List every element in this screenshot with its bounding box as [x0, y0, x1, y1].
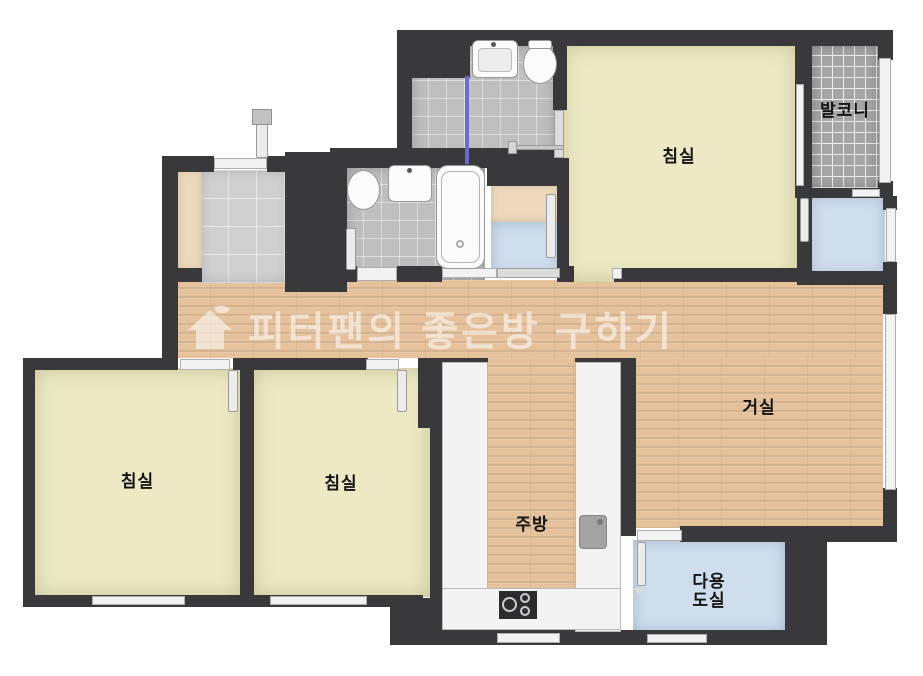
shower-door-bracket: [508, 141, 517, 154]
entrance-threshold: [214, 158, 267, 169]
watermark-text: 피터팬의 좋은방 구하기: [248, 299, 674, 357]
balcony-label: 발코니: [806, 102, 884, 121]
kitchen-floor: [487, 358, 577, 590]
living-room-east-window: [885, 314, 896, 490]
watermark: 피터팬의 좋은방 구하기: [186, 302, 674, 354]
wall-main-bath-bottom-mid: [397, 266, 442, 282]
entrance-floor: [200, 170, 288, 283]
stove-burner-small-bottom: [520, 606, 530, 616]
kitchen-sink-drain: [597, 519, 603, 525]
wall-dressing-bottom-stub: [560, 266, 574, 282]
living-room-label: 거실: [635, 399, 883, 418]
house-logo-icon: [186, 305, 234, 351]
living-room-floor: [635, 358, 883, 528]
wall-bedroom-middle-east: [430, 428, 442, 600]
wall-south: [420, 630, 827, 645]
dressing-door-leaf: [546, 194, 556, 258]
shower-door-bar: [512, 145, 564, 150]
wall-bedroom-top-bottom: [614, 268, 812, 282]
bedroom-middle-label: 침실: [252, 475, 430, 494]
main-bath-threshold: [357, 267, 397, 281]
upper-bath-toilet-tank: [528, 40, 552, 49]
utility-window: [647, 634, 707, 643]
stove-burner-large: [502, 597, 517, 612]
balcony-storage-window: [886, 208, 896, 262]
main-bath-toilet: [347, 170, 380, 210]
wall-outer-west: [162, 156, 178, 368]
bedroom-middle-door-leaf: [397, 370, 407, 412]
utility-room-label: 다용 도실: [633, 573, 785, 610]
utility-room-label-line2: 도실: [633, 592, 785, 611]
balcony-sliding-door: [796, 84, 804, 186]
closet-sliding-strip-2: [497, 268, 560, 278]
upper-bath-sink-basin: [478, 48, 512, 72]
kitchen-label: 주방: [487, 516, 577, 535]
upper-bath-toilet: [523, 44, 557, 84]
bedroom-left-door-leaf: [228, 370, 238, 412]
bedroom-left-threshold: [180, 359, 230, 370]
utility-room-label-line1: 다용: [633, 573, 785, 592]
shoe-cabinet: [178, 170, 202, 270]
main-bath-sink-faucet: [407, 168, 412, 173]
utility-threshold: [637, 530, 682, 541]
wall-upper-bath-corner: [397, 32, 470, 78]
bedroom-middle-window: [270, 596, 367, 605]
balcony-threshold: [852, 189, 880, 197]
main-bath-door-leaf: [346, 228, 356, 270]
wall-bedroom-left-north: [23, 358, 178, 370]
balcony-storage-door-leaf: [800, 198, 809, 242]
wall-shoe-cabinet-bottom: [162, 268, 202, 282]
kitchen-counter-left: [442, 362, 488, 624]
wall-entrance-top-right: [267, 156, 290, 172]
bathtub-inner: [441, 171, 480, 263]
upper-bath-sink-faucet: [491, 42, 496, 47]
floor-plan: 피터팬의 좋은방 구하기: [0, 0, 923, 676]
bathtub-drain: [456, 240, 464, 248]
wall-east-seg2: [883, 262, 897, 314]
bedroom-left-label: 침실: [33, 473, 242, 492]
bedroom-middle-threshold: [366, 359, 399, 370]
wall-balcony-storage-south: [797, 271, 893, 285]
stove-burner-small-top: [520, 593, 530, 603]
closet-sliding-strip: [442, 268, 497, 278]
entrance-door-knob: [252, 109, 272, 125]
wall-dressing-top: [487, 166, 563, 186]
bedroom-left-window: [92, 596, 185, 605]
wall-utility-east: [785, 528, 827, 645]
kitchen-window: [497, 633, 560, 643]
wall-bedroom-middle-ne-block: [418, 358, 442, 428]
shower-screen: [465, 76, 469, 164]
bedroom-top-door-stop: [612, 268, 622, 279]
balcony-storage-floor: [810, 196, 885, 275]
bedroom-top-label: 침실: [561, 148, 797, 167]
wall-kitchen-east: [621, 358, 636, 536]
wall-east-corner-top: [878, 30, 893, 60]
